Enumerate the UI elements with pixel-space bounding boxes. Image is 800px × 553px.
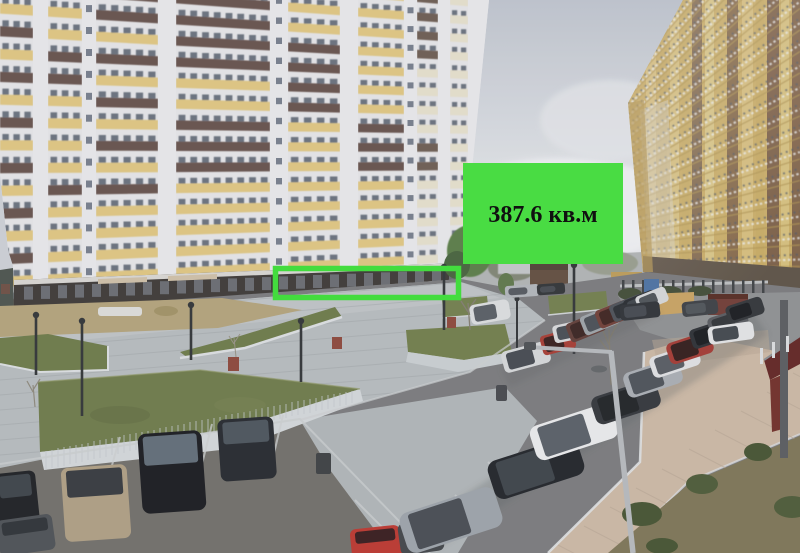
svg-text:387.6 кв.м: 387.6 кв.м (488, 202, 597, 228)
